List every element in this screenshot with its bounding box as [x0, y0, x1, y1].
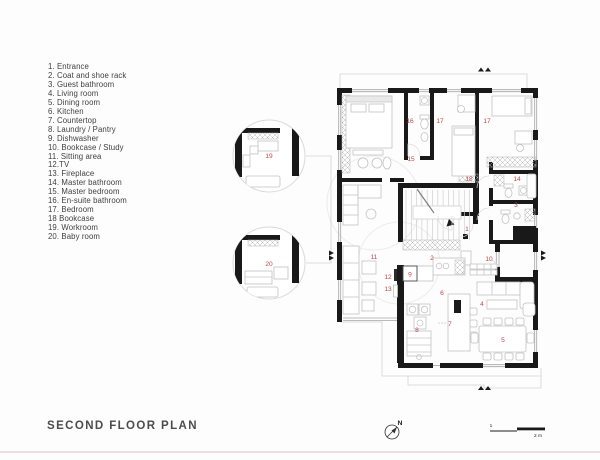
room-label-bookcase-study: 10: [485, 256, 493, 263]
scale-bar: 1 2 m: [490, 423, 545, 439]
furniture-living: [471, 282, 535, 360]
room-label-living: 4: [480, 301, 484, 308]
room-label-workroom: 19: [265, 153, 273, 160]
coat-rack-hatch: [403, 240, 460, 250]
chimney-void: [513, 226, 536, 241]
fireplace-unit: [394, 285, 398, 297]
desk: [515, 131, 532, 144]
room-label-guest-bath: 3: [514, 202, 518, 209]
north-label: N: [398, 420, 403, 427]
room-label-laundry: 8: [415, 327, 419, 334]
room-label-dining: 5: [501, 337, 505, 344]
room-label-master-bed: 15: [407, 156, 415, 163]
staircase: [406, 189, 470, 240]
furniture-kitchen: [403, 258, 477, 360]
room-label-sitting: 11: [371, 254, 378, 261]
room-label-coat-rack: 2: [430, 255, 434, 262]
room-label-dishwasher: 9: [408, 272, 412, 279]
room-label-kitchen: 6: [440, 290, 444, 297]
room-label-bedroom-b: 17: [483, 118, 491, 125]
cooktop: [454, 300, 461, 313]
room-label-tv: 12: [384, 274, 392, 281]
room-label-fireplace: 13: [384, 286, 392, 293]
tv-unit: [394, 269, 397, 281]
north-needle-icon: [392, 427, 398, 434]
sofa: [477, 282, 520, 295]
north-arrow: N: [385, 420, 403, 439]
room-label-master-bath: 14: [513, 176, 521, 183]
room-label-bedroom-a: 17: [436, 118, 444, 125]
wardrobe-hatch-bedroom: [487, 157, 536, 167]
crib: [245, 271, 272, 284]
room-label-ensuite: 16: [406, 118, 414, 125]
stair-arrow-icon: [447, 219, 455, 227]
floor-plan-svg: 16 17 17 15 18 14 3 1 11 2 10 12 9 13 6 …: [0, 0, 600, 460]
room-label-countertop: 7: [448, 321, 452, 328]
room-label-bookcase: 18: [465, 176, 473, 183]
room-label-baby: 20: [265, 261, 273, 268]
drawing-sheet: 1. Entrance 2. Coat and shoe rack 3. Gue…: [0, 0, 600, 460]
coffee-table: [487, 300, 517, 309]
armchair: [523, 303, 535, 316]
scale-start-label: 1: [490, 423, 493, 429]
room-label-entrance: 1: [465, 226, 469, 233]
scale-end-label: 2 m: [534, 433, 542, 439]
